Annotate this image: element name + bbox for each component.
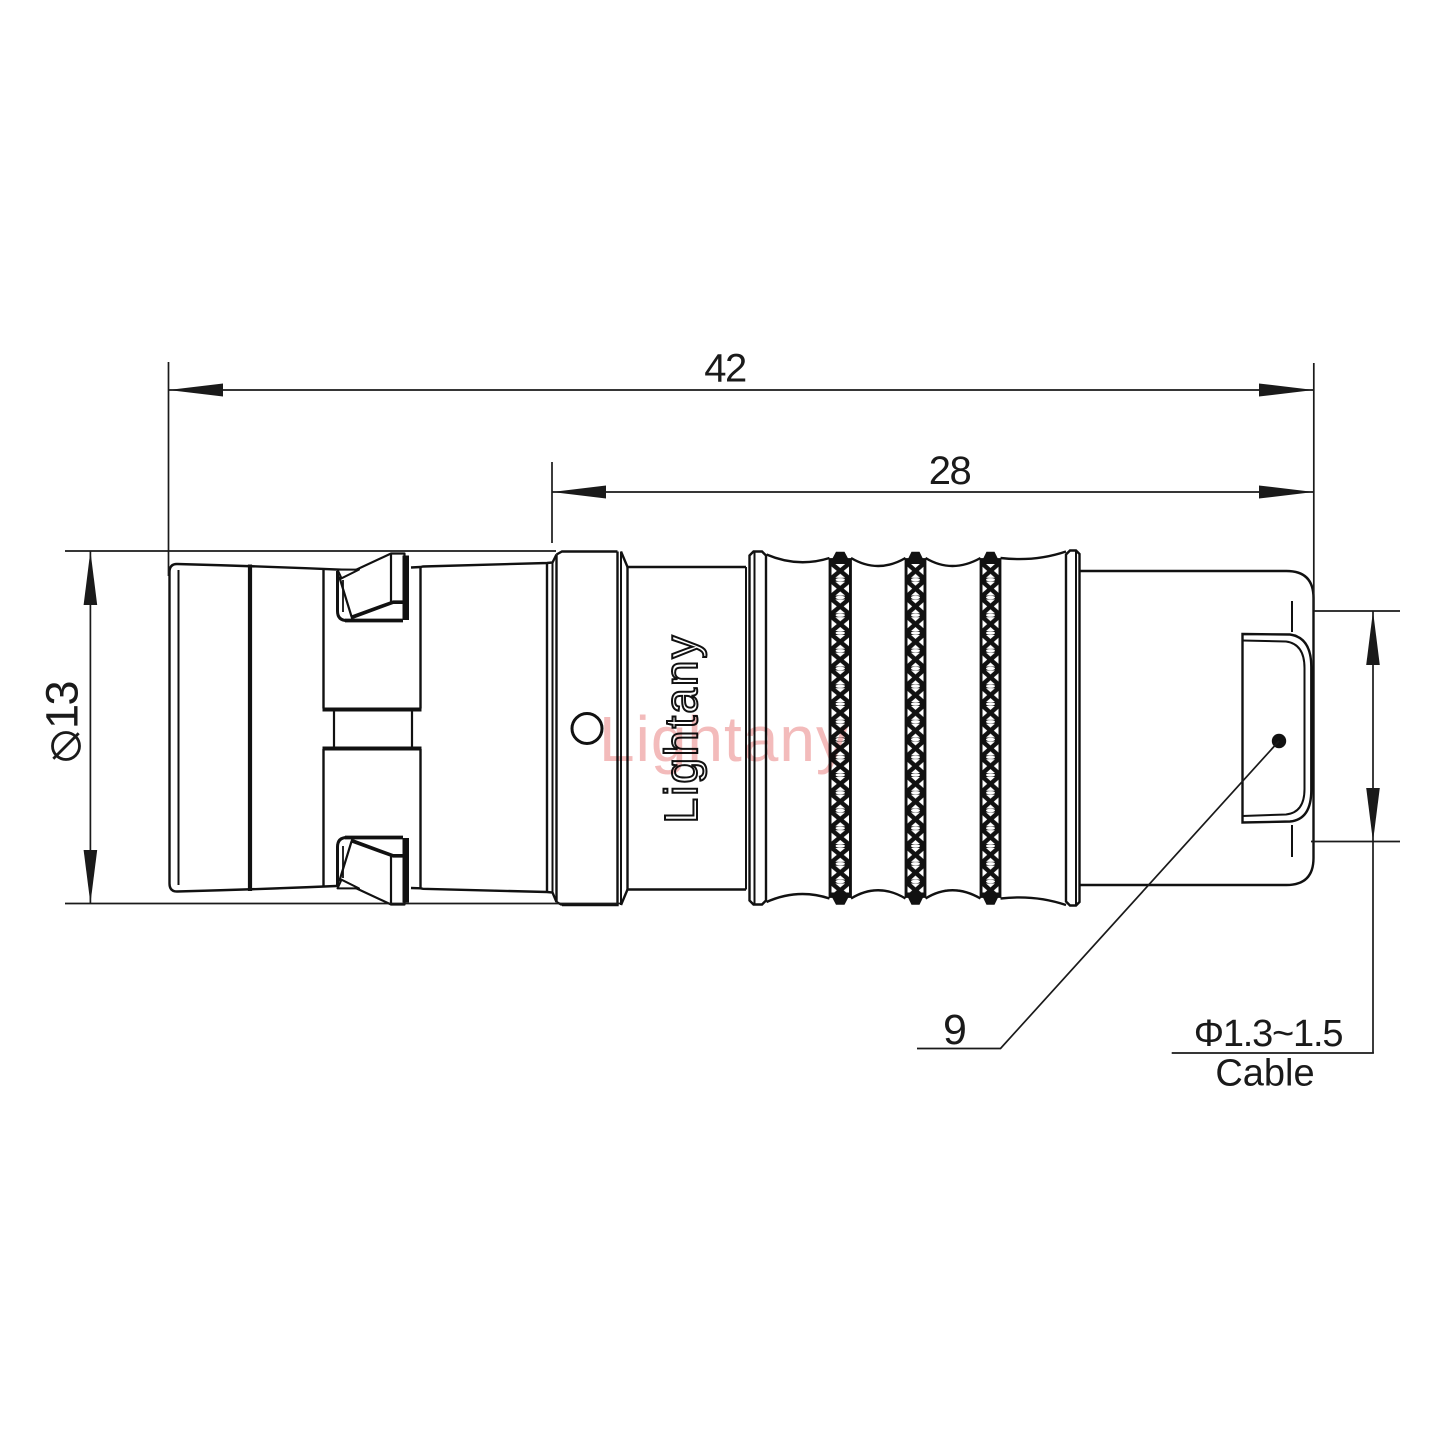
svg-text:28: 28 (929, 449, 971, 493)
svg-text:Lightany: Lightany (599, 703, 849, 775)
svg-text:9: 9 (943, 1006, 967, 1054)
svg-text:13: 13 (37, 681, 88, 729)
svg-text:Cable: Cable (1215, 1053, 1314, 1095)
svg-text:42: 42 (704, 347, 746, 391)
svg-text:Φ1.3~1.5: Φ1.3~1.5 (1194, 1013, 1343, 1055)
